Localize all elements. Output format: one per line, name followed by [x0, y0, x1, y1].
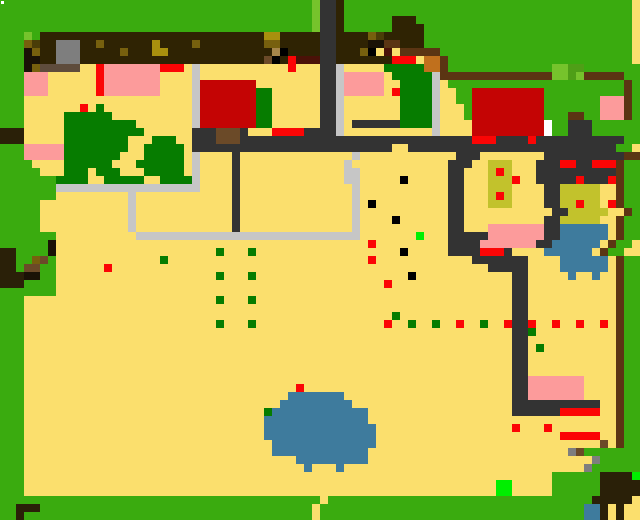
map-canvas[interactable] — [0, 0, 640, 520]
game-map-viewport — [0, 0, 640, 520]
